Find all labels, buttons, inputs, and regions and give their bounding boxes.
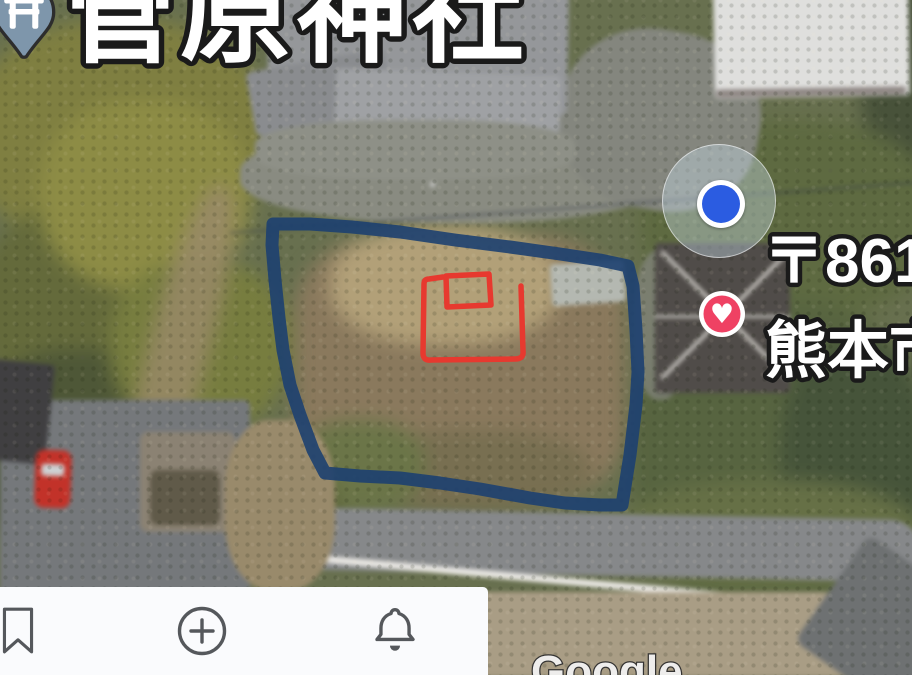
location-dot-inner (702, 185, 740, 223)
stone-gate-shadow (150, 470, 220, 525)
add-button[interactable] (170, 587, 234, 675)
notifications-button[interactable] (363, 587, 427, 675)
shed-roof (550, 259, 627, 306)
bookmark-button[interactable] (0, 587, 50, 675)
bare-ground (225, 420, 335, 590)
add-circle-icon (176, 605, 228, 657)
favorite-marker[interactable]: ♥ (698, 290, 746, 338)
utility-pole (430, 182, 435, 187)
car-windshield (41, 464, 64, 477)
pin-body (0, 0, 54, 57)
bottom-toolbar (0, 587, 488, 675)
terrain-structure-layer (0, 0, 912, 675)
location-dot (697, 180, 745, 228)
red-car (34, 449, 72, 508)
white-roof-building (713, 0, 910, 99)
map-screen: 菅原神社 〒861 熊本市 Google ♥ (0, 0, 912, 675)
bell-icon (370, 604, 420, 658)
heart-icon: ♥ (710, 299, 734, 330)
map-canvas[interactable]: 菅原神社 〒861 熊本市 Google ♥ (0, 0, 912, 675)
gravel-area (255, 120, 575, 180)
bookmark-icon (0, 606, 37, 656)
shrine-pin[interactable] (0, 0, 64, 64)
